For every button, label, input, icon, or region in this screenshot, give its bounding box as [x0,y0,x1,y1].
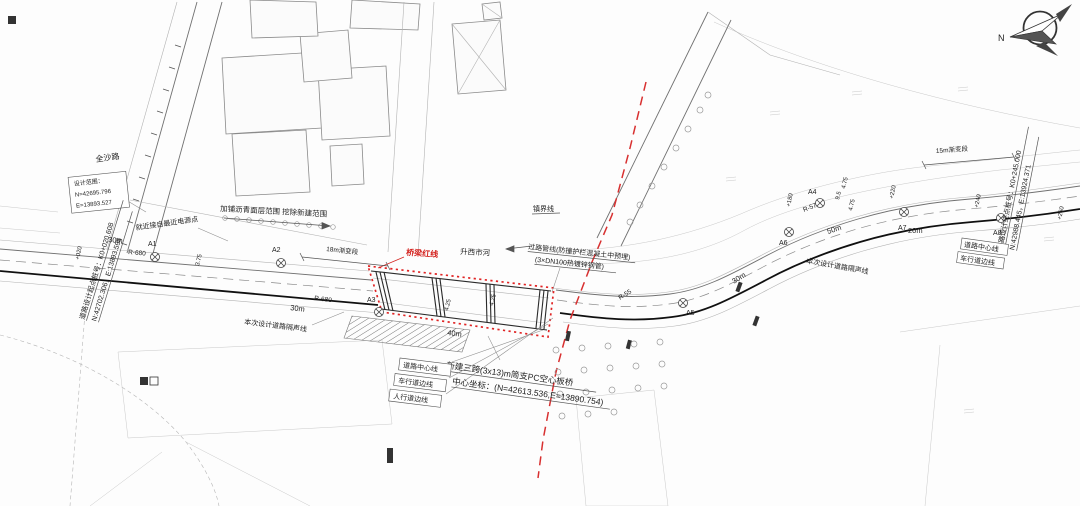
label-a3: A3 [367,297,376,304]
label-dist-30m-2: 30m [290,303,306,314]
label-a1: A1 [148,241,157,248]
bridge-piers [376,272,548,329]
building-x-small [482,2,502,20]
label-transition-18m: 18m渐变段 [326,244,359,256]
label-dist-40m: 40m [447,328,463,339]
label-a8: A8 [993,230,1002,237]
label-town-boundary: 镇界线 [532,204,560,214]
label-dim-375: 3.75 [195,253,204,266]
main-road-layer [0,183,1080,329]
building-x-roof [452,20,506,94]
label-a4: A4 [808,189,817,196]
label-ch-020: +020 [75,245,84,260]
svg-text:镇界线: 镇界线 [533,204,554,213]
buildings-layer [222,0,506,196]
label-a5: A5 [686,310,695,317]
redline-layer [368,82,646,478]
label-power-note: 就近接自最近电源点 [135,214,199,232]
label-r57: R-57 [802,202,818,214]
label-start-station: 道路设计起点桩号：K0+020.608 N:42702.306，E:13893.… [77,197,134,324]
label-r55: R-55 [617,288,633,302]
label-dim-95: 9.5 [835,190,843,200]
label-design-scope: 设计范围： N=42695.796 E=13893.527 [68,171,129,213]
label-stack-west: 道路中心线 车行道边线 人行道边线 [389,357,452,408]
label-a6: A6 [779,240,788,247]
north-compass-icon: N [998,4,1072,56]
label-ch-180: +180 [786,192,795,207]
label-transition-15m: 15m渐变段 [936,144,969,155]
label-r680-mid: R-680 [314,295,333,304]
label-bridge-redline: 桥梁红线 [406,247,439,259]
label-a2: A2 [272,247,281,254]
label-dist-20m: 20m [908,226,923,235]
label-dim-475a: 4.75 [841,176,850,189]
label-dim-425a: 4.25 [444,298,453,311]
label-r680-west: R-680 [128,249,147,258]
label-bridge-name: 新建三跨(3x13)m简支PC空心板桥 中心坐标：(N=42613.536,E=… [443,360,613,409]
label-asphalt-note: 加铺沥青面层范围 挖除新建范围 [220,203,327,219]
label-dist-30m-1: 30m [108,235,123,245]
town-boundary-line [538,82,646,478]
label-pipeline: 过路管线(防撞护栏混凝土中预埋) (3×DN100热镀锌钢管) [526,242,636,275]
label-dim-475b: 4.75 [848,198,857,211]
compass-north-label: N [998,33,1005,43]
label-ch-240: +240 [974,193,983,208]
label-noise-line-west: 本次设计道路隔声线 [244,317,308,334]
asphalt-arrow [224,218,330,229]
drawing-canvas: 全沙路 升西市河 镇界线 设计范围： N=42695.796 E=13893.5… [0,0,1080,506]
label-end-station: 道路设计终点桩号：K0+245.000 N:42988.445，E:13924.… [995,125,1040,253]
label-quansha-road: 全沙路 [95,151,120,164]
label-river-name: 升西市河 [460,246,491,258]
label-ch-260: +260 [1057,205,1066,220]
label-a7: A7 [898,225,907,232]
